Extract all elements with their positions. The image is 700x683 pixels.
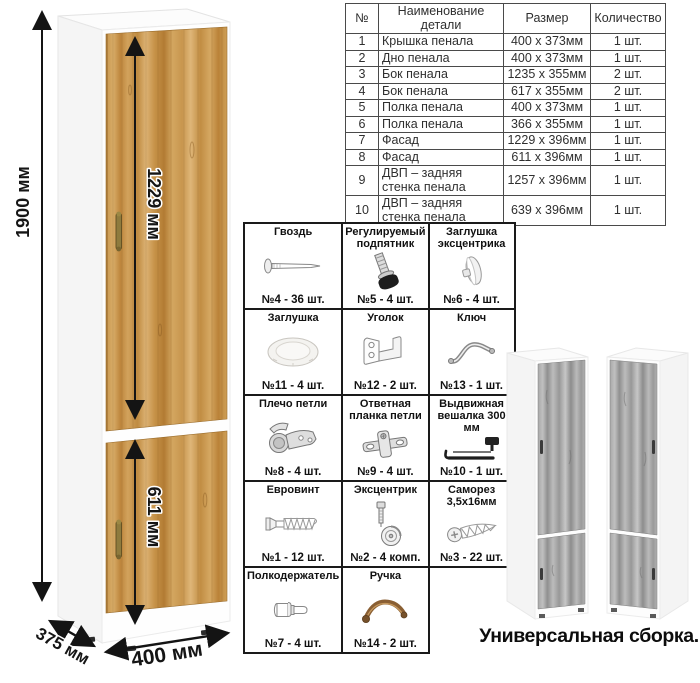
part-name-cell: Дно пенала [379,50,504,67]
table-header-row: № Наименование детали Размер Количество [346,4,666,34]
cam-cover-icon [455,250,489,294]
dimension-label-height: 1900 мм [13,166,33,238]
part-name-cell: Полка пенала [379,116,504,133]
assembly-caption: Универсальная сборка. [476,625,700,648]
hardware-cell: Ответная планка петли №9 - 4 шт. [342,395,428,481]
shelf-pin-icon [272,582,314,638]
table-row: 9ДВП – задняя стенка пенала1257 х 396мм1… [346,166,666,196]
lower-door [106,431,227,613]
part-name-cell: Бок пенала [379,83,504,100]
part-name-cell: Бок пенала [379,67,504,84]
hardware-cell: Уголок №12 - 2 шт. [342,309,428,395]
upper-door-handle [116,212,122,252]
part-number-cell: 9 [346,166,379,196]
plug-icon [265,324,321,380]
part-qty-cell: 1 шт. [591,196,666,226]
hardware-item-count: №2 - 4 комп. [350,552,420,564]
hardware-cell: Заглушка №11 - 4 шт. [244,309,342,395]
part-number-cell: 8 [346,149,379,166]
hardware-item-count: №13 - 1 шт. [440,380,503,392]
header-size: Размер [504,4,591,34]
part-number-cell: 3 [346,67,379,84]
key-icon [446,324,498,380]
hardware-item-count: №7 - 4 шт. [265,638,321,650]
part-name-cell: Крышка пенала [379,34,504,51]
hinge-arm-icon [267,410,319,466]
part-size-cell: 611 х 396мм [504,149,591,166]
hardware-item-title: Ответная планка петли [345,398,425,422]
hardware-grid: Гвоздь №4 - 36 шт. Регулируемый подпятни… [243,222,516,654]
hardware-row: Евровинт №1 - 12 шт. Эксцентрик №2 - 4 к… [244,481,515,567]
table-row: 4Бок пенала617 х 355мм2 шт. [346,83,666,100]
hardware-cell: Эксцентрик №2 - 4 комп. [342,481,428,567]
hardware-item-count: №1 - 12 шт. [262,552,325,564]
hardware-item-title: Уголок [367,312,403,324]
part-qty-cell: 1 шт. [591,166,666,196]
part-size-cell: 1257 х 396мм [504,166,591,196]
part-name-cell: ДВП – задняя стенка пенала [379,196,504,226]
parts-table: № Наименование детали Размер Количество … [345,3,666,226]
hardware-item-title: Заглушка [268,312,319,324]
hardware-row: Заглушка №11 - 4 шт. Уголок №12 - 2 шт. … [244,309,515,395]
table-row: 7Фасад1229 х 396мм1 шт. [346,133,666,150]
hardware-item-title: Заглушка эксцентрика [432,226,512,250]
hardware-item-count: №10 - 1 шт. [440,466,503,478]
part-size-cell: 1229 х 396мм [504,133,591,150]
hardware-item-title: Ручка [370,570,401,582]
part-qty-cell: 1 шт. [591,149,666,166]
table-row: 3Бок пенала1235 х 355мм2 шт. [346,67,666,84]
hardware-item-count: №8 - 4 шт. [265,466,321,478]
table-row: 10ДВП – задняя стенка пенала639 х 396мм1… [346,196,666,226]
hardware-row: Плечо петли №8 - 4 шт. Ответная планка п… [244,395,515,481]
header-num: № [346,4,379,34]
table-row: 5Полка пенала400 х 373мм1 шт. [346,100,666,117]
part-name-cell: ДВП – задняя стенка пенала [379,166,504,196]
table-row: 1Крышка пенала400 х 373мм1 шт. [346,34,666,51]
corner-bracket-icon [361,324,409,380]
cabinet-dimension-drawing: 1900 мм 1229 мм 611 мм 375 мм 400 мм [0,0,240,683]
part-size-cell: 400 х 373мм [504,50,591,67]
adjustable-foot-icon [363,250,407,294]
cam-lock-icon [365,496,405,552]
part-number-cell: 7 [346,133,379,150]
part-size-cell: 617 х 355мм [504,83,591,100]
self-tapping-screw-icon [445,508,499,552]
dimension-label-width: 400 мм [130,638,205,672]
nail-icon [263,238,323,294]
hardware-item-title: Эксцентрик [354,484,417,496]
table-row: 2Дно пенала400 х 373мм1 шт. [346,50,666,67]
part-number-cell: 6 [346,116,379,133]
hardware-item-title: Гвоздь [274,226,312,238]
table-row: 8Фасад611 х 396мм1 шт. [346,149,666,166]
hardware-cell: Гвоздь №4 - 36 шт. [244,223,342,309]
part-size-cell: 1235 х 355мм [504,67,591,84]
pullout-hanger-icon [443,434,501,466]
hardware-row: Полкодержатель №7 - 4 шт. Ручка №14 - 2 … [244,567,515,653]
hardware-cell: Евровинт №1 - 12 шт. [244,481,342,567]
part-qty-cell: 2 шт. [591,67,666,84]
hardware-cell: Ручка №14 - 2 шт. [342,567,428,653]
part-qty-cell: 1 шт. [591,34,666,51]
dimension-label-upper-door: 1229 мм [144,168,164,240]
part-name-cell: Полка пенала [379,100,504,117]
part-size-cell: 639 х 396мм [504,196,591,226]
part-size-cell: 400 х 373мм [504,100,591,117]
part-qty-cell: 1 шт. [591,133,666,150]
hardware-cell: Плечо петли №8 - 4 шт. [244,395,342,481]
hardware-item-count: №3 - 22 шт. [440,552,503,564]
universal-assembly-drawing [495,330,700,630]
hardware-item-title: Плечо петли [259,398,327,410]
hardware-cell: Заглушка эксцентрика №6 - 4 шт. [429,223,515,309]
table-row: 6Полка пенала366 х 355мм1 шт. [346,116,666,133]
gray-right-lower-handle [652,568,655,580]
part-size-cell: 400 х 373мм [504,34,591,51]
hardware-row: Гвоздь №4 - 36 шт. Регулируемый подпятни… [244,223,515,309]
gray-right-door-handle [652,440,655,454]
gray-left-lower-handle [540,568,543,580]
assembly-sheet: 1900 мм 1229 мм 611 мм 375 мм 400 мм № Н… [0,0,700,683]
part-qty-cell: 1 шт. [591,116,666,133]
hardware-item-count: №4 - 36 шт. [262,294,325,306]
hardware-item-title: Регулируемый подпятник [345,226,425,250]
part-qty-cell: 1 шт. [591,100,666,117]
header-qty: Количество [591,4,666,34]
part-number-cell: 2 [346,50,379,67]
dimension-label-lower-door: 611 мм [144,487,164,548]
part-qty-cell: 1 шт. [591,50,666,67]
lower-door-handle [116,520,122,560]
hinge-plate-icon [359,422,411,466]
part-size-cell: 366 х 355мм [504,116,591,133]
gray-cabinet-right [607,348,688,619]
upper-door [106,27,227,431]
part-number-cell: 5 [346,100,379,117]
gray-cabinet-left [507,348,588,619]
hardware-item-count: №9 - 4 шт. [357,466,413,478]
hardware-item-count: №12 - 2 шт. [354,380,417,392]
euroscrew-icon [264,496,322,552]
part-number-cell: 4 [346,83,379,100]
hardware-item-title: Евровинт [267,484,320,496]
hardware-cell: Полкодержатель №7 - 4 шт. [244,567,342,653]
part-number-cell: 1 [346,34,379,51]
hardware-item-count: №11 - 4 шт. [262,380,324,392]
hardware-item-count: №6 - 4 шт. [443,294,499,306]
part-name-cell: Фасад [379,149,504,166]
part-name-cell: Фасад [379,133,504,150]
part-number-cell: 10 [346,196,379,226]
part-qty-cell: 2 шт. [591,83,666,100]
header-name: Наименование детали [379,4,504,34]
hardware-cell: Регулируемый подпятник №5 - 4 шт. [342,223,428,309]
gray-left-door-handle [540,440,543,454]
hardware-item-title: Полкодержатель [247,570,339,582]
hardware-item-count: №5 - 4 шт. [357,294,413,306]
handle-icon [359,582,411,638]
hardware-item-title: Ключ [457,312,486,324]
hardware-item-count: №14 - 2 шт. [354,638,417,650]
cabinet-side-panel [58,16,102,643]
